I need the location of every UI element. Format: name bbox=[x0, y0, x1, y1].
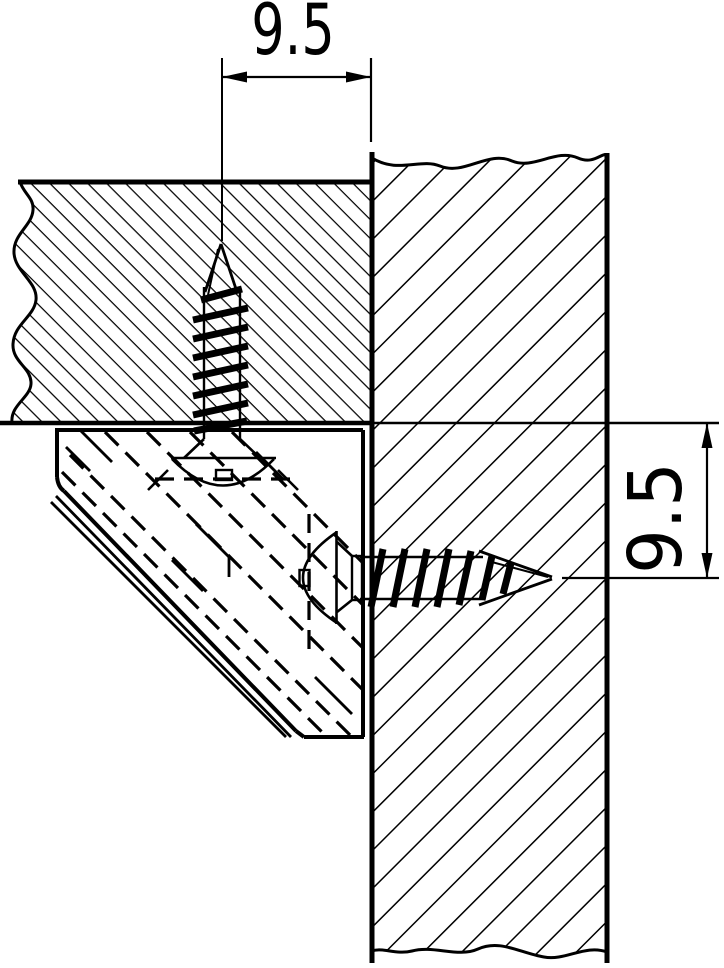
top-dimension: 9.5 bbox=[222, 0, 371, 142]
right-dimension-arrow-top bbox=[702, 423, 713, 448]
top-dimension-arrow-right bbox=[346, 72, 371, 83]
bracket-hidden-edges bbox=[62, 432, 363, 737]
top-panel-hatch bbox=[12, 182, 372, 423]
technical-drawing-page: 9.5 9.5 bbox=[0, 0, 724, 968]
top-panel-section bbox=[12, 182, 372, 423]
corner-bracket bbox=[51, 428, 364, 737]
bracket-diagonal-face bbox=[64, 491, 296, 731]
technical-drawing-canvas: 9.5 9.5 bbox=[0, 0, 724, 968]
right-dimension-value: 9.5 bbox=[613, 462, 699, 574]
top-dimension-arrow-left bbox=[222, 72, 247, 83]
bracket-bottom-chamfer bbox=[296, 731, 304, 737]
right-dimension-arrow-bottom bbox=[702, 553, 713, 578]
bracket-corner-round bbox=[57, 477, 64, 491]
top-dimension-value: 9.5 bbox=[251, 0, 334, 71]
bracket-face-line-1 bbox=[56, 496, 291, 737]
